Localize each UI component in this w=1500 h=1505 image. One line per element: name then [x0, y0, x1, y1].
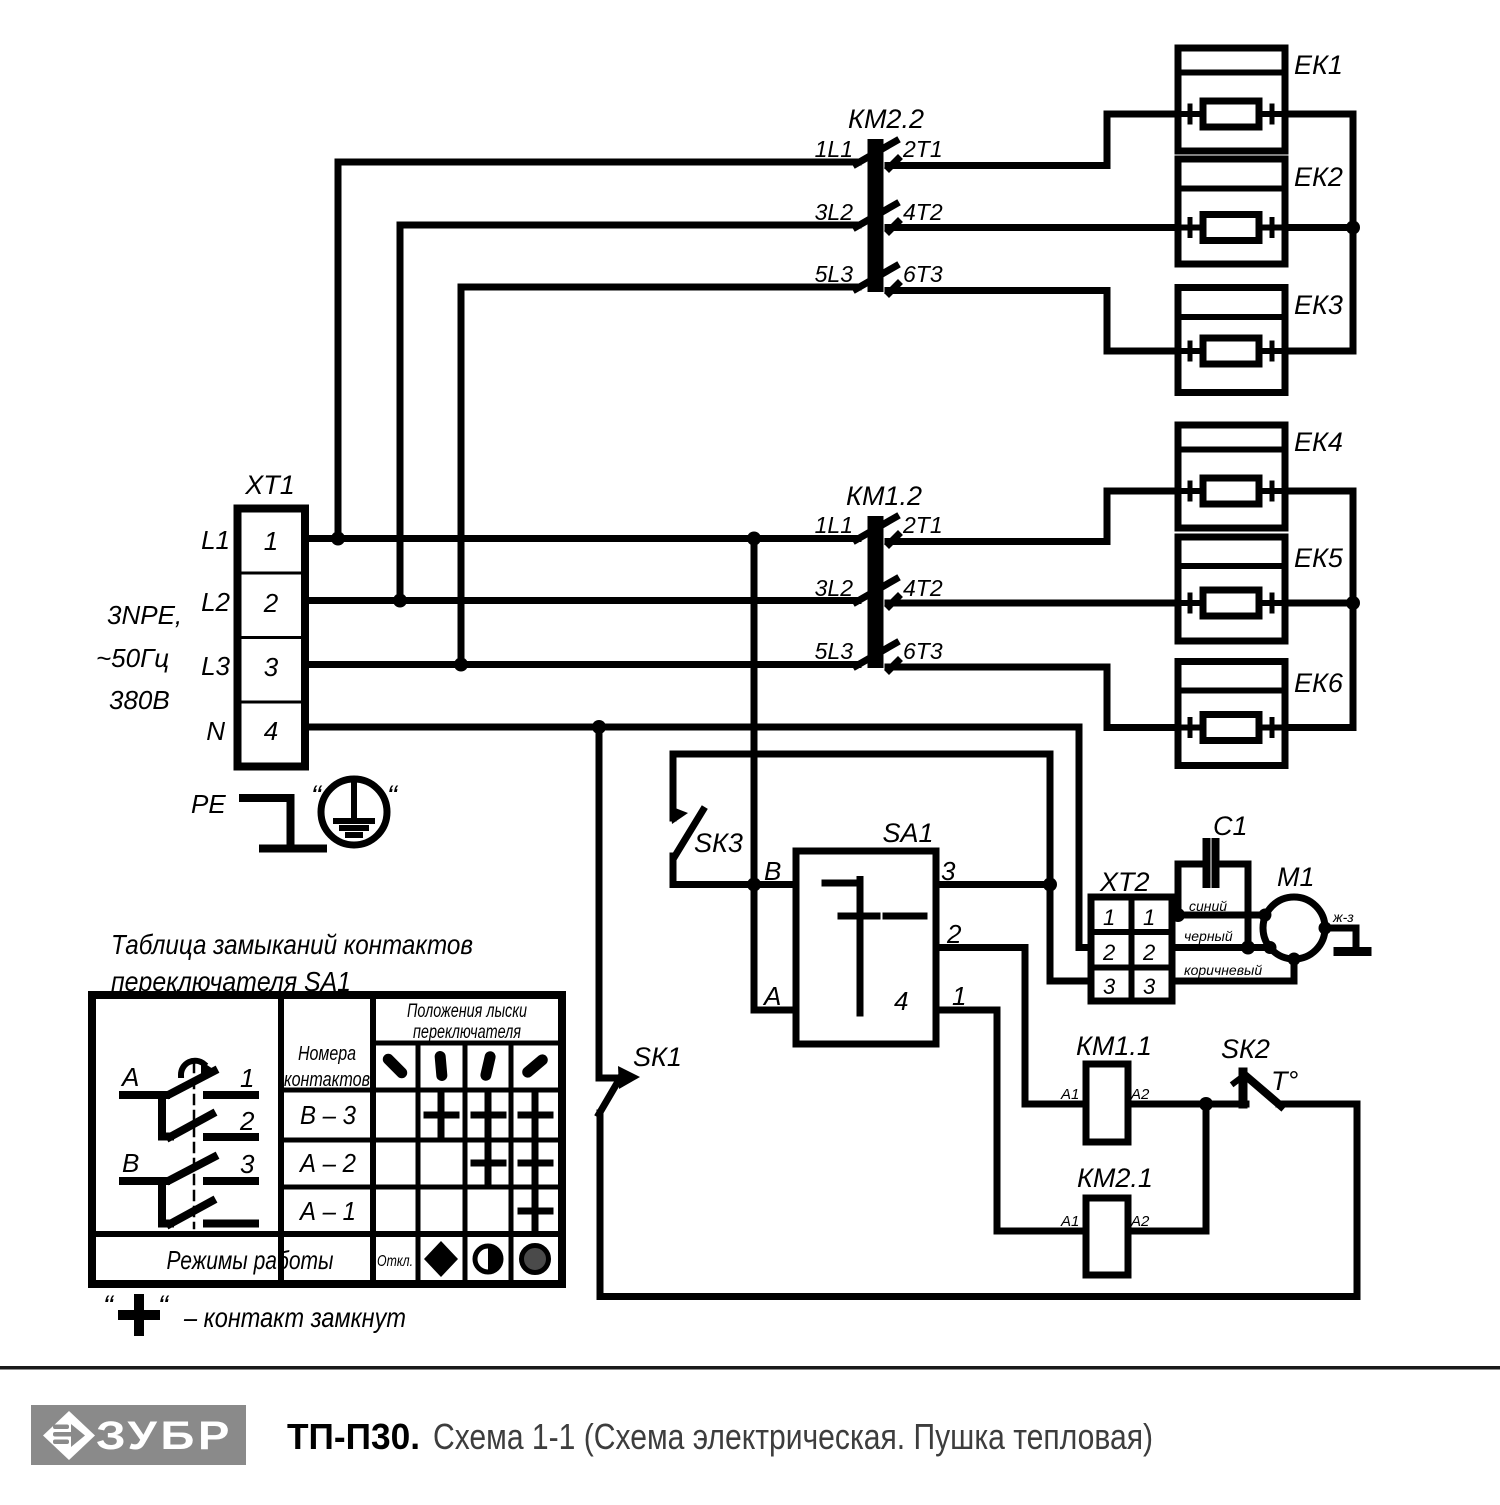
- svg-text:КМ1.1: КМ1.1: [1076, 1031, 1152, 1061]
- svg-text:черный: черный: [1184, 928, 1233, 944]
- svg-text:КМ2.1: КМ2.1: [1077, 1163, 1153, 1193]
- svg-text:1L1: 1L1: [815, 136, 853, 162]
- svg-text:Таблица замыканий контактов: Таблица замыканий контактов: [111, 929, 473, 960]
- svg-text:ЕК6: ЕК6: [1294, 668, 1344, 698]
- svg-text:А1: А1: [1060, 1086, 1079, 1103]
- svg-text:ТП-П30.Схема 1-1 (Схема электр: ТП-П30.Схема 1-1 (Схема электрическая. П…: [287, 1416, 1153, 1457]
- svg-text:6Т3: 6Т3: [903, 638, 943, 664]
- svg-text:SК2: SК2: [1221, 1034, 1270, 1064]
- svg-text:SА1: SА1: [882, 818, 933, 848]
- svg-text:ХТ2: ХТ2: [1099, 867, 1150, 897]
- svg-text:L2: L2: [201, 587, 230, 617]
- svg-text:В: В: [122, 1148, 139, 1178]
- svg-text:С1: С1: [1213, 811, 1248, 841]
- svg-text:синий: синий: [1189, 898, 1227, 914]
- svg-text:2: 2: [1142, 940, 1155, 965]
- svg-text:2: 2: [239, 1106, 255, 1136]
- svg-text:4Т2: 4Т2: [903, 199, 943, 225]
- svg-text:ЕК5: ЕК5: [1294, 543, 1344, 573]
- svg-text:2Т1: 2Т1: [902, 512, 943, 538]
- svg-text:Откл.: Откл.: [377, 1253, 413, 1270]
- svg-text:3NPE,: 3NPE,: [107, 600, 182, 630]
- svg-text:3: 3: [1103, 974, 1116, 999]
- svg-text:1L1: 1L1: [815, 512, 853, 538]
- svg-text:1: 1: [240, 1063, 254, 1093]
- svg-text:РЕ: РЕ: [191, 789, 226, 819]
- svg-text:2Т1: 2Т1: [902, 136, 943, 162]
- svg-text:4: 4: [894, 986, 908, 1016]
- svg-text:L3: L3: [201, 651, 230, 681]
- svg-text:4: 4: [264, 716, 278, 746]
- svg-text:N: N: [206, 716, 225, 746]
- svg-text:А – 2: А – 2: [298, 1148, 356, 1178]
- svg-text:ЗУБР: ЗУБР: [96, 1414, 233, 1458]
- svg-text:380В: 380В: [109, 685, 170, 715]
- svg-text:А2: А2: [1130, 1213, 1150, 1230]
- svg-text:3: 3: [240, 1149, 255, 1179]
- svg-text:6Т3: 6Т3: [903, 261, 943, 287]
- svg-text:ЕК2: ЕК2: [1294, 162, 1343, 192]
- svg-text:В: В: [764, 856, 781, 886]
- svg-text:~50Гц: ~50Гц: [96, 643, 169, 673]
- svg-text:переключателя: переключателя: [413, 1022, 521, 1043]
- svg-text:SК3: SК3: [694, 828, 743, 858]
- svg-text:ЕК3: ЕК3: [1294, 290, 1343, 320]
- svg-text:1: 1: [1103, 905, 1115, 930]
- svg-text:Номера: Номера: [298, 1043, 356, 1065]
- svg-text:2: 2: [263, 588, 279, 618]
- svg-text:контактов: контактов: [284, 1069, 370, 1091]
- svg-text:ХТ1: ХТ1: [244, 470, 295, 500]
- svg-text:3: 3: [264, 652, 279, 682]
- svg-text:М1: М1: [1277, 862, 1315, 892]
- svg-text:ЕК4: ЕК4: [1294, 427, 1343, 457]
- svg-text:КМ2.2: КМ2.2: [848, 104, 924, 134]
- svg-text:5L3: 5L3: [815, 261, 854, 287]
- svg-text:SК1: SК1: [633, 1042, 682, 1072]
- svg-text:5L3: 5L3: [815, 638, 854, 664]
- svg-text:ж-з: ж-з: [1332, 909, 1354, 925]
- svg-text:3: 3: [1143, 974, 1156, 999]
- svg-text:Режимы работы: Режимы работы: [167, 1245, 334, 1275]
- svg-text:3L2: 3L2: [815, 575, 854, 601]
- svg-text:4Т2: 4Т2: [903, 575, 943, 601]
- svg-text:А1: А1: [1060, 1213, 1079, 1230]
- svg-text:КМ1.2: КМ1.2: [846, 481, 922, 511]
- svg-text:Т°: Т°: [1271, 1066, 1298, 1096]
- svg-text:А2: А2: [1130, 1086, 1150, 1103]
- svg-text:коричневый: коричневый: [1184, 962, 1262, 978]
- svg-text:А – 1: А – 1: [298, 1196, 356, 1226]
- svg-text:2: 2: [1102, 940, 1115, 965]
- svg-text:А: А: [762, 981, 781, 1011]
- svg-text:ЕК1: ЕК1: [1294, 50, 1343, 80]
- svg-text:1: 1: [1143, 905, 1155, 930]
- svg-text:1: 1: [264, 526, 278, 556]
- svg-text:L1: L1: [201, 525, 230, 555]
- svg-text:Положения лыски: Положения лыски: [407, 1001, 527, 1022]
- svg-text:3L2: 3L2: [815, 199, 854, 225]
- svg-text:А: А: [120, 1062, 139, 1092]
- svg-text:В – 3: В – 3: [300, 1100, 356, 1130]
- svg-text:– контакт замкнут: – контакт замкнут: [183, 1302, 406, 1333]
